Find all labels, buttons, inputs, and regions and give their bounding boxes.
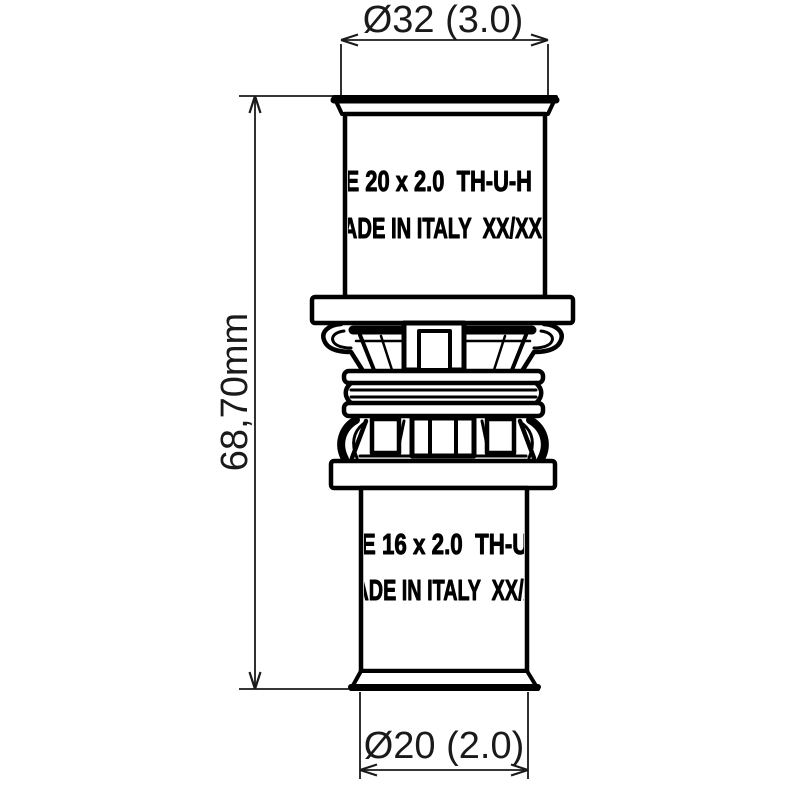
upper-sleeve-marking-line2: MADE IN ITALY XX/XX xyxy=(326,213,542,245)
dimension-left-extension-lines xyxy=(239,96,353,689)
lower-press-ring-zone xyxy=(341,418,545,459)
press-fitting-drawing: Ø32 (3.0) 68,70mm Ø20 (2.0) PE 20 x 2.0 … xyxy=(0,0,800,800)
lower-press-collar xyxy=(331,461,555,488)
upper-sleeve xyxy=(345,114,545,297)
middle-waist xyxy=(346,383,542,403)
upper-press-ring-zone xyxy=(323,323,561,371)
lower-flare xyxy=(351,671,538,689)
lower-sleeve-marking-line1: PE 16 x 2.0 TH-U-H xyxy=(346,529,552,561)
technical-drawing-canvas: Ø32 (3.0) 68,70mm Ø20 (2.0) PE 20 x 2.0 … xyxy=(0,0,800,800)
lower-sleeve-marking-line2: MADE IN ITALY XX/XX xyxy=(338,575,550,607)
upper-flare xyxy=(334,97,556,114)
upper-press-collar xyxy=(312,297,573,323)
dimension-left-label: 68,70mm xyxy=(214,313,256,471)
dimension-top-extension-lines xyxy=(341,44,548,96)
fitting-body: PE 20 x 2.0 TH-U-H MADE IN ITALY XX/XX xyxy=(312,97,573,689)
dimension-top-label: Ø32 (3.0) xyxy=(363,0,524,41)
middle-ring-band-bottom xyxy=(344,403,543,416)
dimension-top xyxy=(341,35,548,97)
upper-sleeve-marking-line1: PE 20 x 2.0 TH-U-H xyxy=(330,166,532,198)
dimension-bottom-label: Ø20 (2.0) xyxy=(364,725,525,767)
middle-ring-band-top xyxy=(344,371,543,383)
dimension-left xyxy=(239,96,353,689)
